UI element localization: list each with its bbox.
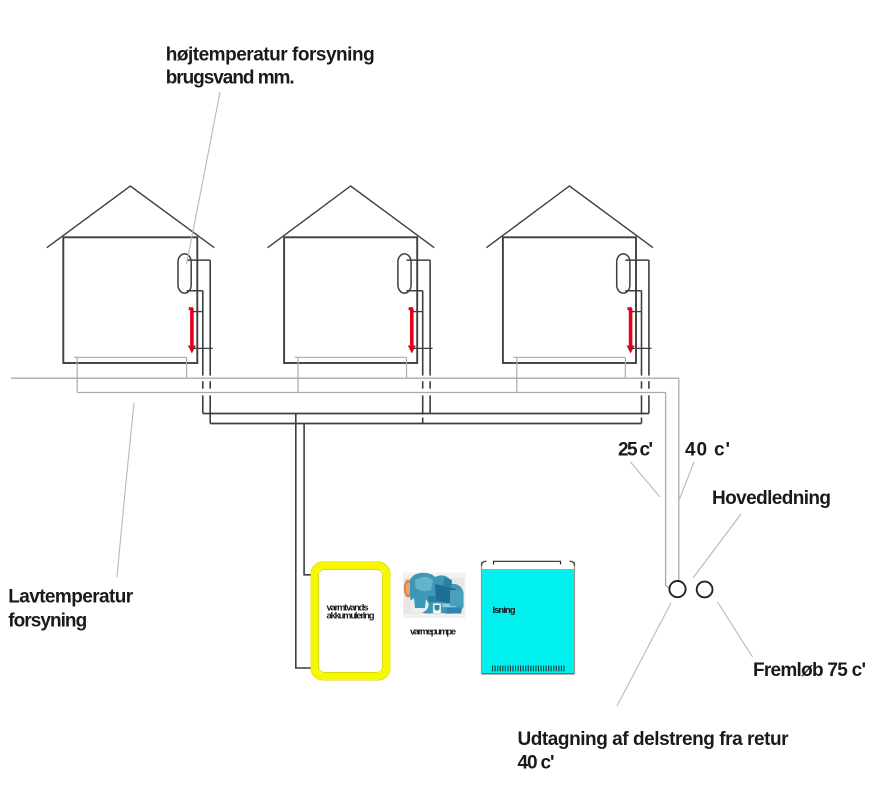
svg-text:40 c': 40 c' (518, 753, 555, 774)
svg-text:25 c': 25 c' (618, 440, 653, 461)
svg-text:Lavtemperatur: Lavtemperatur (8, 587, 134, 608)
svg-text:akkumulering: akkumulering (327, 611, 375, 622)
svg-text:Isning: Isning (493, 605, 516, 616)
svg-text:Fremløb 75 c': Fremløb 75 c' (753, 660, 866, 681)
svg-text:forsyning: forsyning (8, 611, 87, 632)
svg-text:højtemperatur forsyning: højtemperatur forsyning (166, 44, 375, 65)
svg-text:varmepumpe: varmepumpe (410, 627, 456, 638)
svg-text:40 c': 40 c' (685, 440, 730, 461)
svg-text:Hovedledning: Hovedledning (712, 488, 831, 509)
svg-text:Udtagning af delstreng fra ret: Udtagning af delstreng fra retur (518, 729, 790, 750)
svg-text:brugsvand mm.: brugsvand mm. (166, 67, 295, 88)
